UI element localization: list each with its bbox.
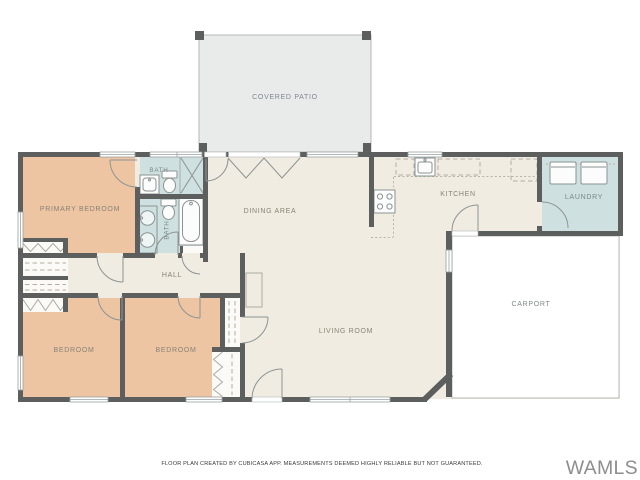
kitchen-sink [415, 158, 435, 176]
bedroom-center-label: BEDROOM [155, 347, 196, 354]
patio-post [195, 31, 204, 40]
patio-post [363, 143, 371, 152]
bedroom-left-label: BEDROOM [53, 347, 94, 354]
kitchen-label: KITCHEN [440, 191, 476, 198]
primary-bedroom-label: PRIMARY BEDROOM [40, 206, 120, 213]
kitchen-door-gap [452, 231, 478, 236]
window [100, 152, 135, 157]
window [18, 356, 23, 390]
hall-hvac-closet-area [225, 298, 240, 347]
stove [374, 190, 395, 213]
patio-door-gap [205, 152, 227, 157]
window [307, 152, 358, 157]
watermark-wamls: WAMLS [566, 457, 638, 479]
window [70, 397, 108, 402]
window [310, 397, 390, 402]
dining-area-label: DINING AREA [244, 208, 297, 215]
footer-disclaimer: FLOOR PLAN CREATED BY CUBICASA APP. MEAS… [161, 461, 483, 467]
hall-closet-2-area [23, 280, 68, 293]
window [446, 250, 452, 272]
floor-plan-canvas: COVERED PATIO PRIMARY BEDROOM BATH BATH … [0, 0, 640, 480]
window [18, 212, 23, 248]
bath-lower-label: BATH [164, 220, 171, 239]
window [150, 152, 202, 157]
carport-label: CARPORT [512, 301, 551, 308]
patio-post [362, 31, 371, 40]
french-door-gap [229, 152, 301, 157]
room-fills [20, 31, 620, 399]
bath-upper-label: BATH [149, 167, 168, 174]
toilet [161, 199, 176, 220]
laundry-label: LAUNDRY [565, 194, 603, 201]
window [408, 152, 442, 157]
carport-area [452, 236, 619, 398]
patio-post [199, 143, 207, 152]
window [186, 397, 222, 402]
bathtub [179, 197, 203, 245]
washer-dryer [546, 162, 616, 184]
toilet [162, 171, 177, 193]
linen-closet-area [183, 246, 203, 253]
floor-plan-svg: COVERED PATIO PRIMARY BEDROOM BATH BATH … [0, 0, 640, 480]
bedroom-center-closet-area [212, 352, 240, 397]
living-room-label: LIVING ROOM [319, 328, 373, 335]
front-door-gap [252, 397, 282, 402]
hall-label: HALL [162, 272, 182, 279]
hall-closet-1-area [23, 258, 68, 276]
covered-patio-label: COVERED PATIO [252, 94, 318, 101]
